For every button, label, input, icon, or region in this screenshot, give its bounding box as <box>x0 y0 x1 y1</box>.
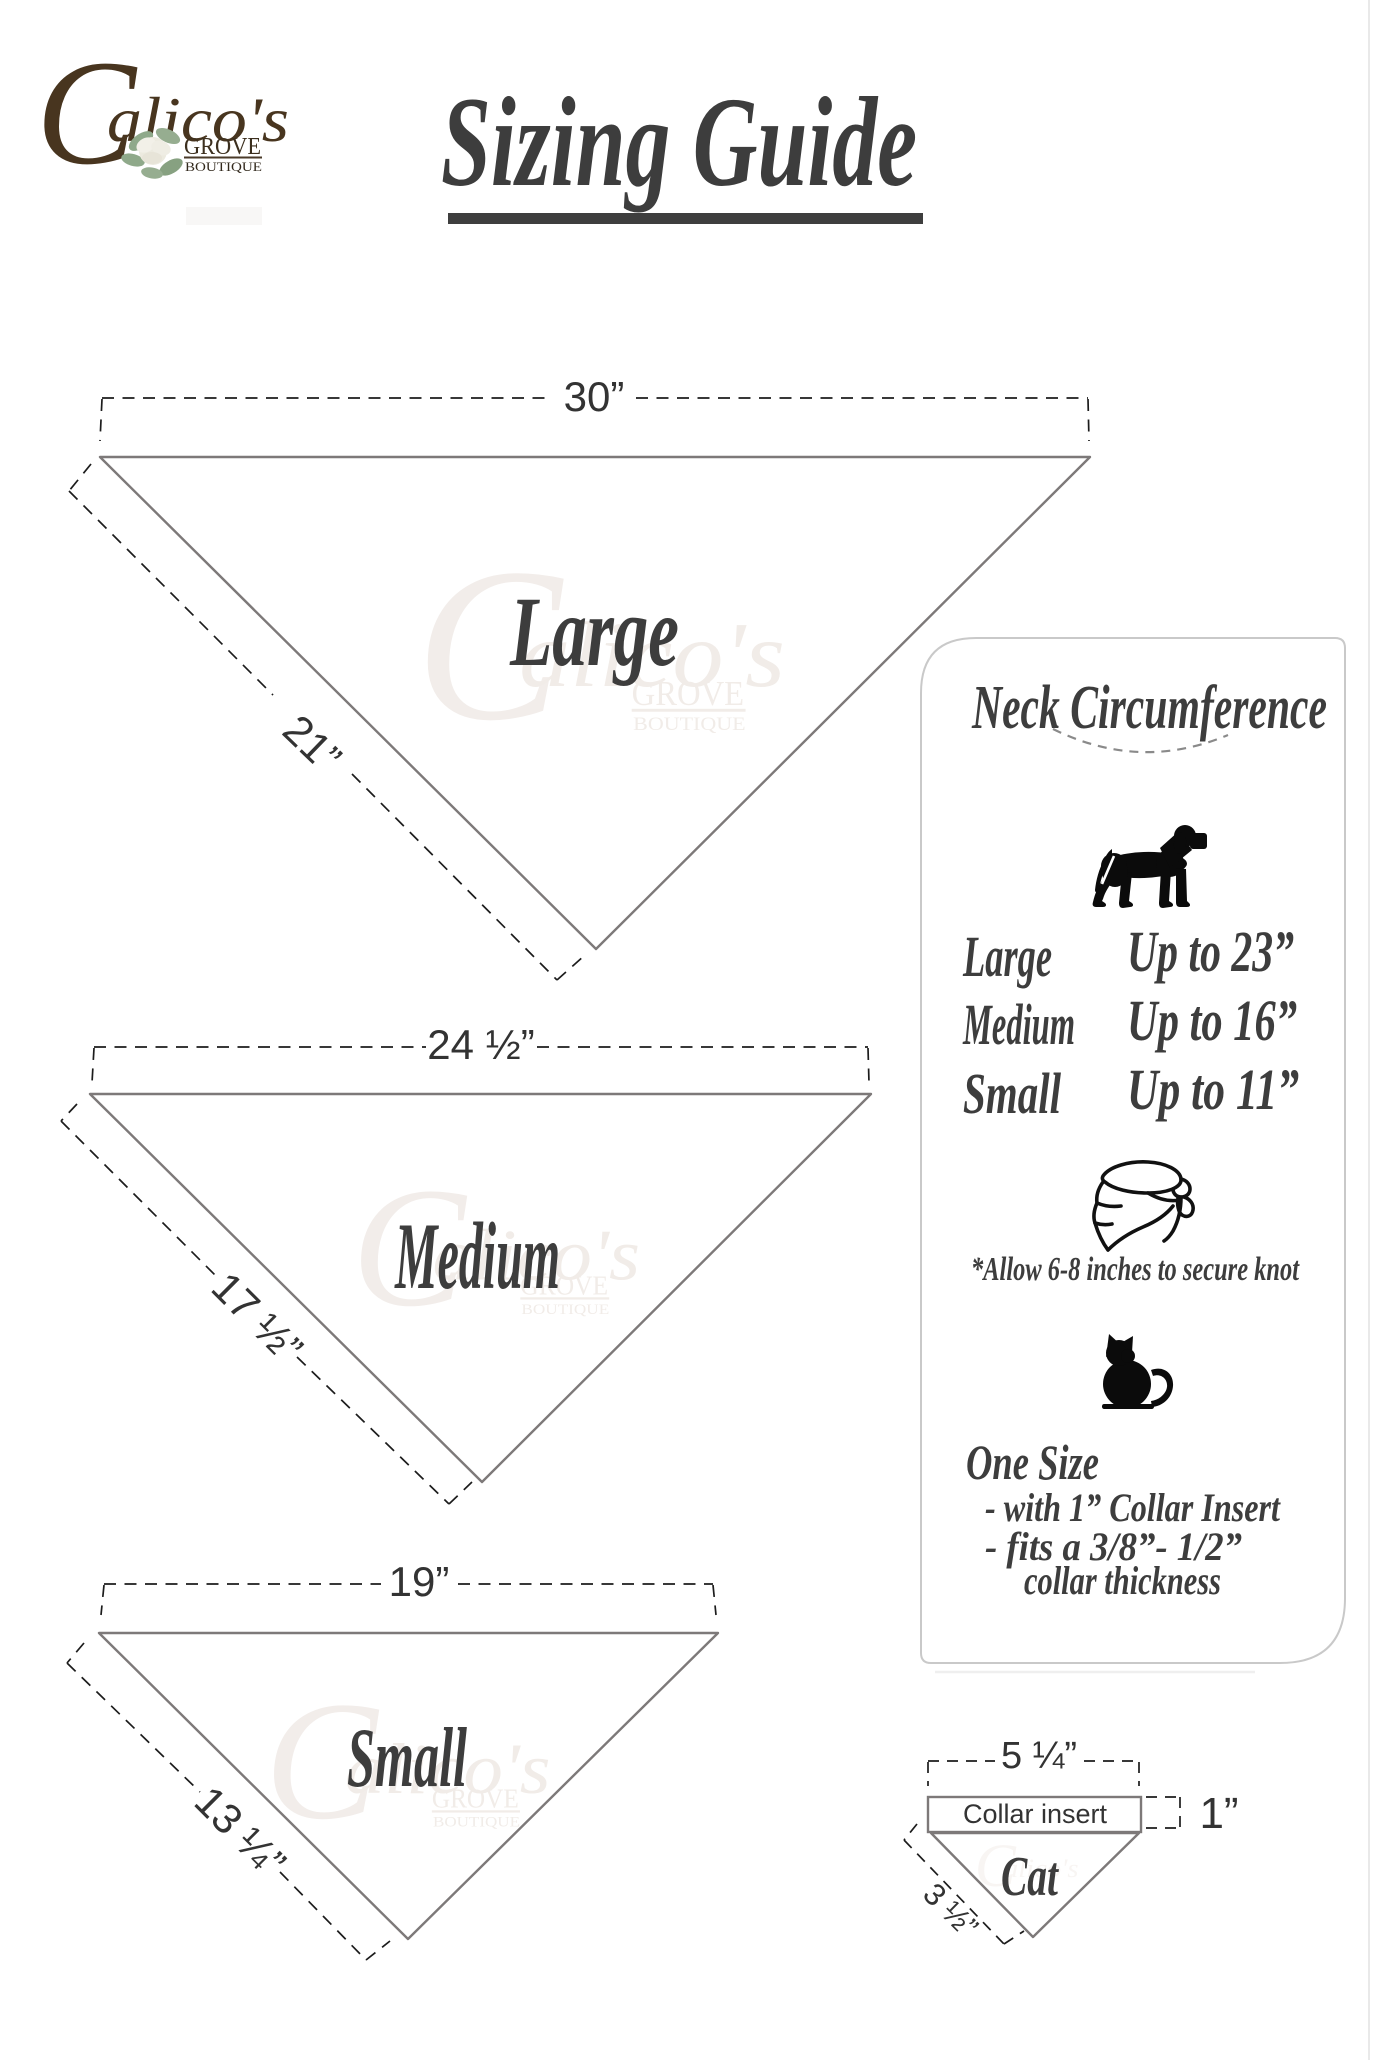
svg-text:Medium: Medium <box>962 992 1075 1057</box>
svg-text:24 ½”: 24 ½” <box>427 1021 534 1068</box>
svg-text:Small: Small <box>347 1711 467 1805</box>
svg-text:30”: 30” <box>564 373 625 420</box>
svg-text:*Allow 6-8 inches to secure kn: *Allow 6-8 inches to secure knot <box>971 1251 1300 1288</box>
svg-text:Large: Large <box>962 924 1052 989</box>
svg-text:Up to 11”: Up to 11” <box>1127 1057 1299 1122</box>
svg-text:Up to 16”: Up to 16” <box>1127 988 1297 1053</box>
svg-text:19”: 19” <box>389 1558 450 1605</box>
svg-text:BOUTIQUE: BOUTIQUE <box>633 714 745 735</box>
svg-text:BOUTIQUE: BOUTIQUE <box>433 1815 520 1831</box>
svg-text:1”: 1” <box>1199 1789 1238 1838</box>
svg-text:5 ¼”: 5 ¼” <box>1001 1735 1077 1777</box>
svg-text:BOUTIQUE: BOUTIQUE <box>185 159 262 174</box>
svg-text:Medium: Medium <box>394 1203 560 1309</box>
svg-text:GROVE: GROVE <box>184 134 261 160</box>
svg-text:Small: Small <box>963 1061 1062 1126</box>
svg-text:Neck Circumference: Neck Circumference <box>971 674 1327 742</box>
svg-text:One Size: One Size <box>966 1434 1099 1490</box>
svg-text:Sizing Guide: Sizing Guide <box>441 71 917 213</box>
svg-text:Cat: Cat <box>1001 1846 1059 1908</box>
svg-text:collar thickness: collar thickness <box>1024 1558 1221 1603</box>
svg-text:Large: Large <box>509 576 679 687</box>
svg-text:Collar insert: Collar insert <box>963 1799 1108 1829</box>
svg-text:Up to 23”: Up to 23” <box>1127 919 1294 984</box>
